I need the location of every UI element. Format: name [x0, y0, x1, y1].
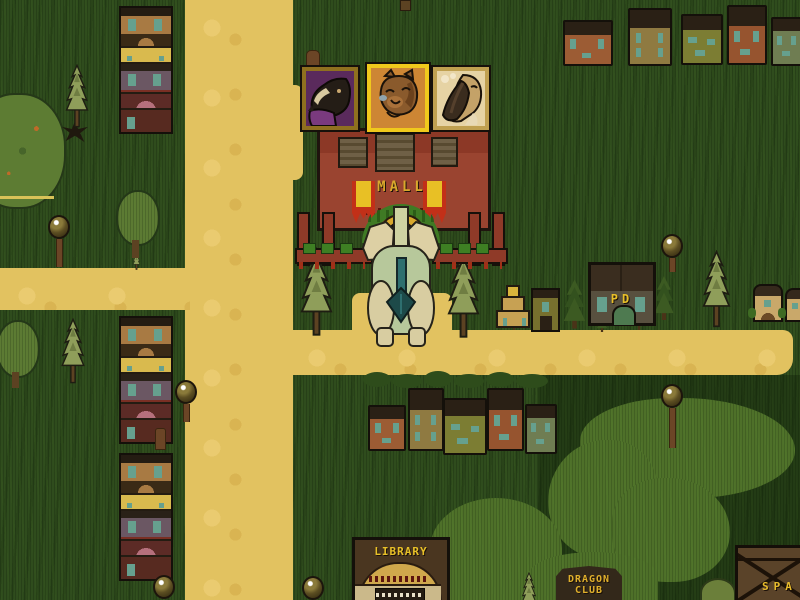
round-tree-trunk	[12, 372, 19, 388]
lamp-globe	[302, 576, 324, 600]
roadside-bush	[516, 374, 548, 388]
house-column-north[interactable]	[119, 6, 173, 134]
house-rust[interactable]	[368, 405, 406, 451]
row-house-tan	[121, 318, 171, 356]
mall-roof-vent	[431, 137, 458, 167]
street-lamp	[302, 576, 324, 600]
player-dragon-sprite[interactable]	[355, 202, 447, 352]
spa-sign-label: SPA	[762, 580, 797, 593]
row-house-yellow	[121, 46, 171, 62]
kiosk-base	[496, 310, 530, 328]
round-tree	[0, 320, 40, 378]
small-hut-cut[interactable]	[785, 288, 800, 322]
roadside-bush	[392, 374, 422, 388]
hut-bush	[748, 308, 756, 318]
road-horizontal-west	[0, 268, 190, 310]
pine-tree	[58, 318, 88, 384]
lamp-globe	[661, 384, 683, 408]
pergola-shrub	[303, 243, 316, 254]
party-portrait-bird[interactable]	[433, 67, 489, 130]
hut-bush	[778, 308, 786, 318]
house-khaki[interactable]	[408, 388, 444, 451]
row-house-purple	[121, 372, 171, 402]
library-window-sign	[375, 588, 425, 600]
roadside-bush	[424, 371, 452, 387]
pd-door[interactable]	[612, 305, 636, 325]
club-bush	[700, 578, 736, 600]
pergola-shrub	[458, 243, 471, 254]
house-column-south[interactable]	[119, 453, 173, 581]
library-building[interactable]: LIBRARY	[352, 537, 450, 600]
row-house-yellow	[121, 493, 171, 509]
street-lamp	[153, 575, 175, 599]
dragon-club-line2: CLUB	[556, 585, 622, 596]
house-column-mid[interactable]	[119, 316, 173, 444]
party-portrait-cub-active[interactable]	[367, 64, 429, 132]
row-house-pink	[121, 539, 171, 555]
row-house-purple	[121, 509, 171, 539]
brown-cub-portrait-icon	[371, 68, 425, 128]
pine-tree-tall	[700, 250, 733, 328]
kiosk-top	[506, 285, 520, 298]
pd-roof-seam	[620, 265, 622, 291]
roadside-bush	[454, 374, 484, 388]
row-house-tan	[121, 455, 171, 493]
dragon-club-line1: DRAGON	[556, 574, 622, 585]
house-khaki[interactable]	[628, 8, 672, 66]
lamp-post-stub	[400, 0, 411, 11]
road-vertical	[185, 0, 293, 600]
small-olive-house[interactable]	[531, 288, 560, 332]
library-sign-label: LIBRARY	[355, 545, 447, 558]
house-rust-2[interactable]	[487, 388, 524, 451]
mall-roof-vent	[375, 133, 415, 172]
lamp-globe	[48, 215, 70, 239]
lamp-post	[669, 258, 676, 272]
row-house-purple	[121, 62, 171, 92]
bird-portrait-icon	[437, 71, 485, 126]
house-olive[interactable]	[443, 398, 487, 455]
house-rust[interactable]	[563, 20, 613, 66]
house-sage[interactable]	[525, 404, 557, 454]
pergola-shrub	[340, 243, 353, 254]
lamp-post	[183, 404, 190, 422]
library-arch-glyphs	[369, 576, 429, 582]
row-house-darkred	[121, 108, 171, 132]
round-tree	[116, 190, 160, 246]
lamp-post	[669, 408, 676, 448]
row-house-tan	[121, 8, 171, 46]
lamp-post-stub	[155, 428, 166, 450]
street-lamp	[661, 234, 683, 272]
house-rust-2[interactable]	[727, 5, 767, 65]
dark-dragon-portrait-icon	[306, 71, 354, 126]
mall-roof-vent	[338, 137, 368, 168]
apple-tree-canopy	[0, 93, 66, 209]
pergola-shrub	[321, 243, 334, 254]
shrine-kiosk[interactable]	[496, 280, 530, 328]
street-lamp	[48, 215, 70, 267]
game-viewport[interactable]: MALL PD	[0, 0, 800, 600]
roadside-bush	[486, 372, 514, 387]
lamp-post	[56, 239, 63, 267]
dragon-club-sign[interactable]: DRAGON CLUB	[556, 566, 622, 600]
wire-line	[0, 196, 54, 199]
pd-sign-label: PD	[591, 292, 653, 306]
street-lamp	[661, 384, 683, 448]
lamp-globe	[175, 380, 197, 404]
pine-tree-cut	[516, 572, 542, 600]
pergola-shrub	[476, 243, 489, 254]
house-olive[interactable]	[681, 14, 723, 65]
kiosk-mid	[501, 296, 525, 312]
pine-tree-dark	[563, 274, 586, 334]
lamp-globe	[661, 234, 683, 258]
spa-building[interactable]: SPA	[735, 545, 800, 600]
row-house-pink	[121, 402, 171, 418]
party-portrait-dragon[interactable]	[302, 67, 358, 130]
pine-tree	[64, 64, 90, 128]
street-lamp	[175, 380, 197, 422]
round-tree-trunk	[132, 240, 139, 258]
row-house-yellow	[121, 356, 171, 372]
row-house-pink	[121, 92, 171, 108]
pd-building[interactable]: PD	[588, 262, 656, 326]
house-sage[interactable]	[771, 17, 800, 66]
lamp-globe	[153, 575, 175, 599]
roadside-bush	[363, 372, 391, 387]
